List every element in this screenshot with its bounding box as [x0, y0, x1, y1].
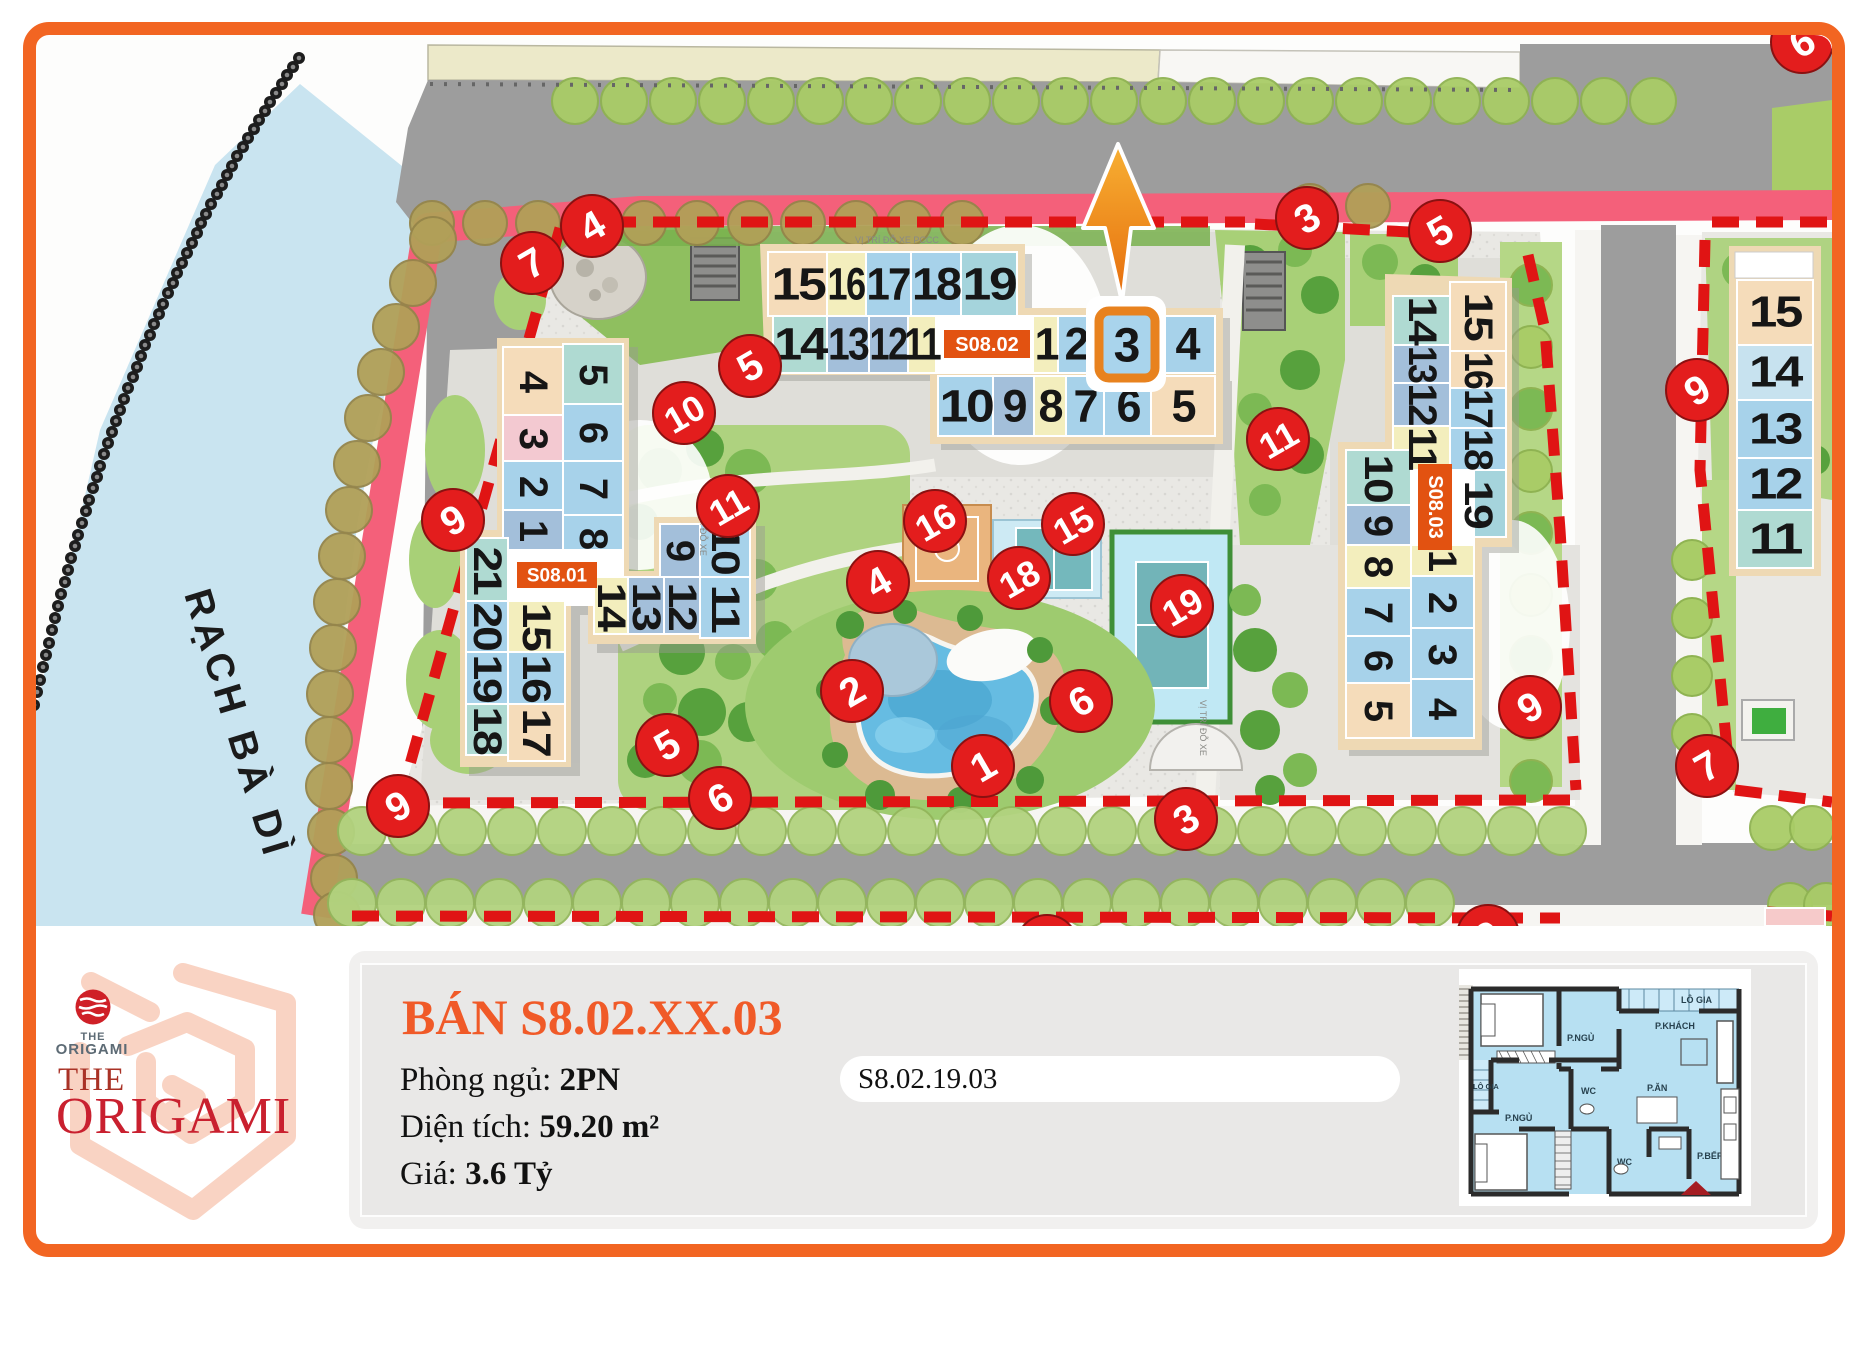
svg-text:4: 4: [1420, 698, 1464, 721]
svg-text:17: 17: [867, 259, 911, 310]
svg-text:14: 14: [1749, 348, 1804, 397]
svg-text:3: 3: [511, 428, 555, 449]
svg-text:13: 13: [1749, 405, 1802, 454]
svg-text:3: 3: [1114, 320, 1141, 373]
svg-text:5: 5: [1171, 381, 1195, 432]
svg-text:7: 7: [1356, 602, 1400, 623]
svg-text:8: 8: [1038, 381, 1062, 432]
svg-text:1: 1: [1420, 550, 1464, 572]
svg-text:12: 12: [1749, 460, 1802, 509]
svg-text:3: 3: [1420, 644, 1464, 665]
svg-text:2: 2: [1064, 319, 1088, 370]
svg-text:18: 18: [465, 707, 509, 756]
svg-text:4: 4: [1175, 319, 1200, 370]
svg-text:11: 11: [703, 585, 747, 634]
svg-text:19: 19: [1456, 481, 1500, 529]
svg-text:P.BẾP: P.BẾP: [1697, 1151, 1723, 1161]
svg-text:9: 9: [1356, 515, 1400, 536]
svg-text:1: 1: [1034, 319, 1058, 370]
svg-text:10: 10: [940, 381, 994, 432]
svg-text:S08.02: S08.02: [955, 334, 1018, 356]
svg-text:11: 11: [1749, 515, 1803, 564]
svg-text:ORIGAMI: ORIGAMI: [56, 1041, 129, 1058]
svg-text:14: 14: [1400, 297, 1444, 347]
svg-text:18: 18: [912, 259, 961, 310]
svg-text:S08.01: S08.01: [527, 566, 588, 587]
svg-text:18: 18: [1456, 429, 1500, 471]
svg-text:6: 6: [571, 422, 615, 443]
svg-text:15: 15: [1749, 288, 1803, 337]
svg-text:2: 2: [511, 476, 555, 497]
svg-text:4: 4: [511, 371, 555, 394]
svg-text:17: 17: [514, 709, 558, 757]
svg-text:VỊ TRÍ ĐỖ XE PCCC: VỊ TRÍ ĐỖ XE PCCC: [855, 234, 939, 245]
svg-text:14: 14: [774, 319, 828, 370]
svg-text:7: 7: [571, 478, 615, 499]
svg-text:21: 21: [465, 547, 509, 596]
svg-text:6: 6: [1356, 650, 1400, 671]
svg-text:15: 15: [1456, 293, 1500, 342]
svg-text:8: 8: [1356, 556, 1400, 578]
svg-text:9: 9: [1002, 381, 1026, 432]
svg-text:13: 13: [828, 319, 869, 370]
svg-text:LÔ GIA: LÔ GIA: [1681, 994, 1712, 1005]
svg-text:17: 17: [1456, 389, 1500, 428]
svg-text:P.NGỦ: P.NGỦ: [1567, 1032, 1594, 1043]
svg-text:P.ĂN: P.ĂN: [1647, 1083, 1667, 1093]
svg-text:5: 5: [1356, 700, 1400, 722]
svg-text:1: 1: [511, 520, 555, 542]
svg-text:15: 15: [514, 603, 558, 652]
svg-text:13: 13: [1400, 346, 1444, 383]
svg-text:8: 8: [571, 528, 615, 550]
svg-text:VỊ TRÍ ĐỖ XE: VỊ TRÍ ĐỖ XE: [1198, 700, 1209, 756]
svg-text:12: 12: [660, 583, 704, 631]
svg-text:2: 2: [1420, 592, 1464, 613]
svg-text:LÔ GIA: LÔ GIA: [1473, 1082, 1499, 1091]
svg-text:S08.03: S08.03: [1424, 475, 1446, 538]
svg-text:P.KHÁCH: P.KHÁCH: [1655, 1021, 1695, 1031]
svg-text:16: 16: [828, 259, 866, 310]
svg-text:ORIGAMI: ORIGAMI: [56, 1088, 291, 1145]
svg-text:19: 19: [465, 655, 509, 703]
svg-text:19: 19: [963, 259, 1017, 310]
svg-text:9: 9: [658, 540, 702, 561]
svg-text:12: 12: [870, 319, 908, 370]
svg-text:10: 10: [1356, 455, 1400, 503]
svg-text:12: 12: [1400, 384, 1444, 426]
svg-text:5: 5: [571, 364, 615, 386]
svg-text:WC: WC: [1581, 1086, 1596, 1096]
svg-text:11: 11: [904, 319, 941, 370]
svg-text:16: 16: [514, 655, 558, 703]
svg-text:15: 15: [772, 259, 826, 310]
svg-text:16: 16: [1456, 352, 1500, 389]
svg-text:P.NGỦ: P.NGỦ: [1505, 1112, 1532, 1123]
svg-text:20: 20: [465, 603, 509, 651]
